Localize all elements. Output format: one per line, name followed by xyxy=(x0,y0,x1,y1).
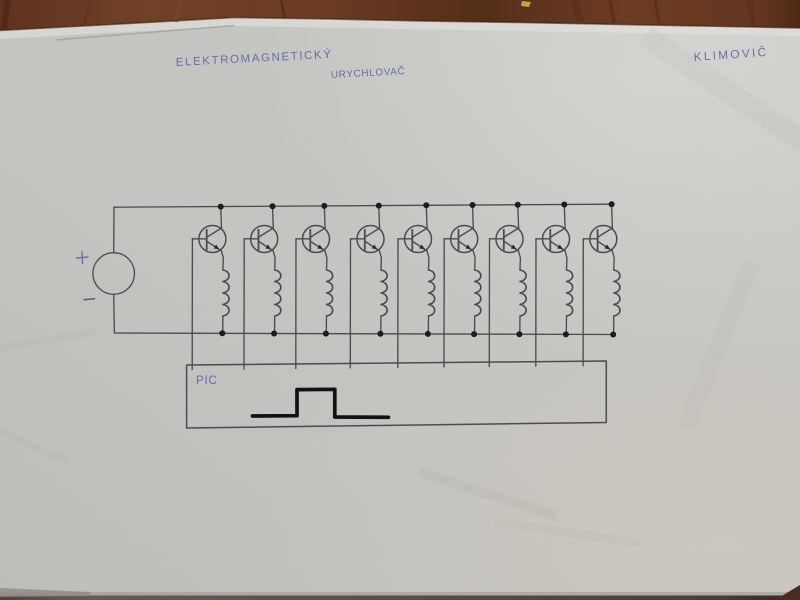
svg-text:PIC: PIC xyxy=(196,375,218,387)
